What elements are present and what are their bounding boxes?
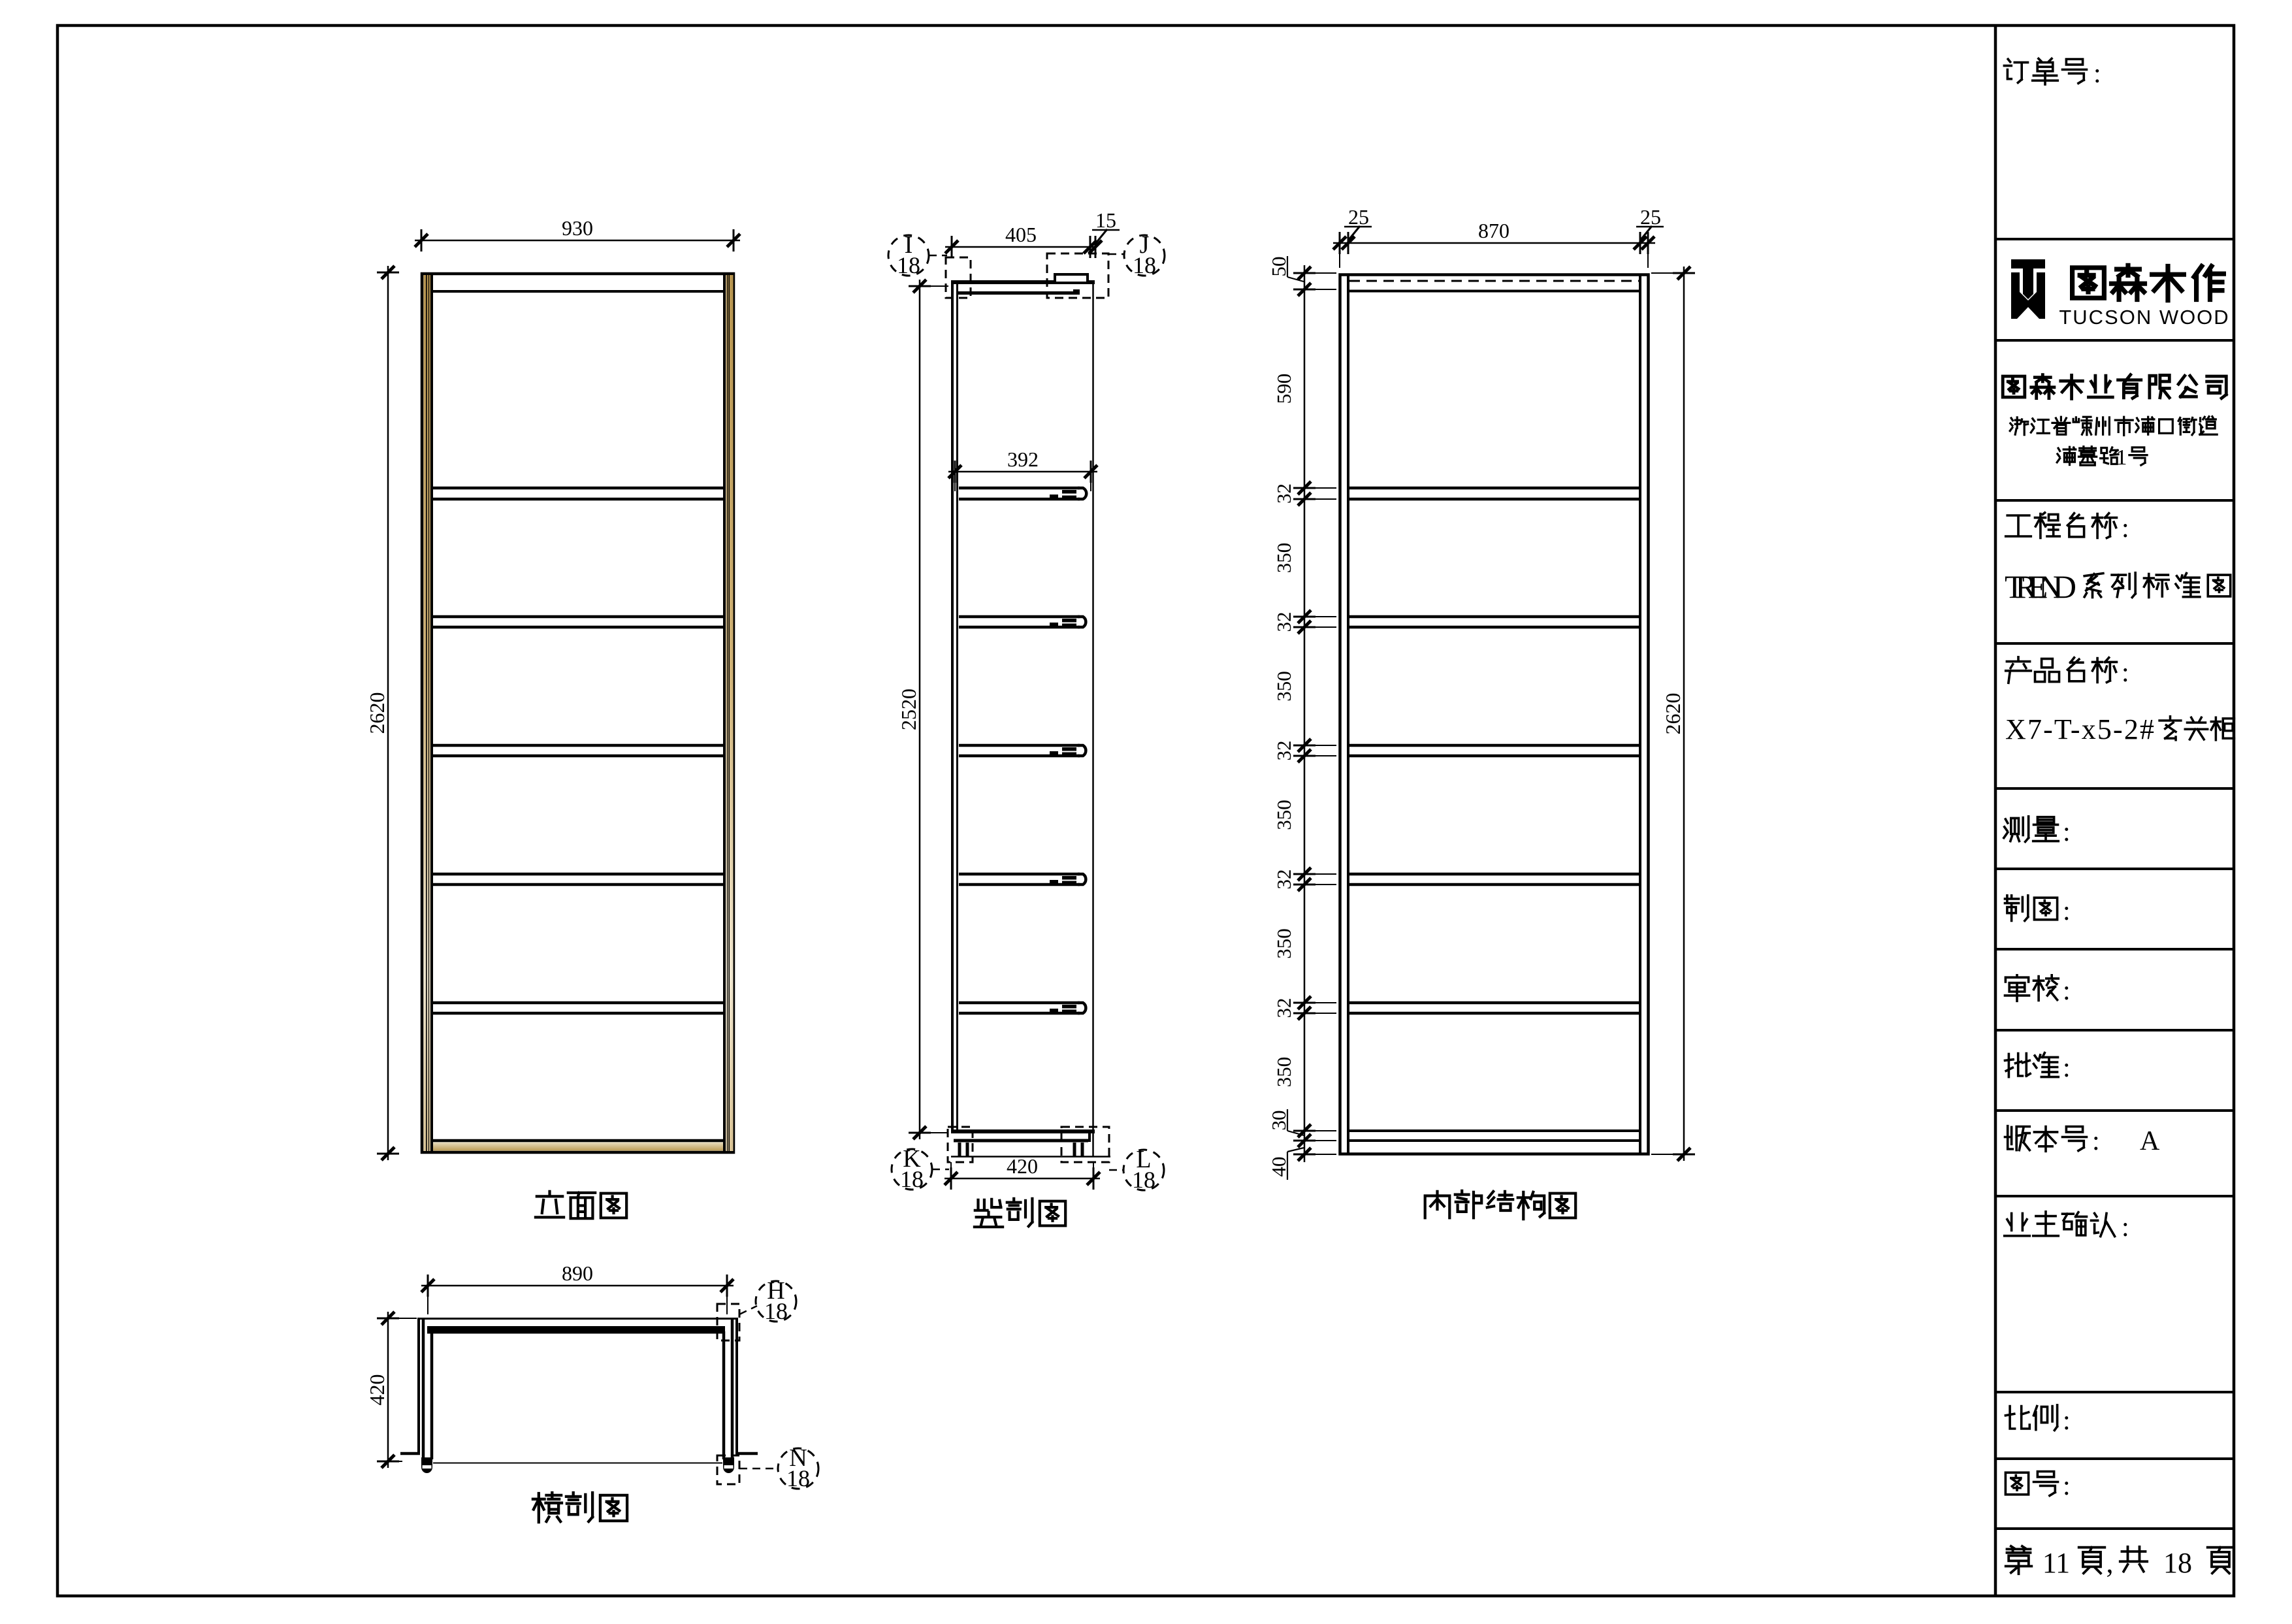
svg-text::: : [2063, 1053, 2071, 1083]
svg-text:32: 32 [1272, 741, 1295, 761]
svg-text:350: 350 [1272, 928, 1295, 959]
svg-text:25: 25 [1640, 205, 1661, 229]
svg-text:,: , [2106, 1547, 2114, 1579]
svg-text:890: 890 [562, 1261, 593, 1285]
svg-text:350: 350 [1272, 671, 1295, 702]
svg-text::: : [2063, 1406, 2071, 1436]
svg-text:18: 18 [900, 1166, 924, 1192]
svg-text:392: 392 [1007, 447, 1039, 471]
svg-text:X7-T-x5-2#: X7-T-x5-2# [2005, 713, 2154, 745]
svg-text:32: 32 [1272, 483, 1295, 504]
svg-text:32: 32 [1272, 612, 1295, 632]
svg-text:18: 18 [1132, 1167, 1155, 1193]
svg-text:40: 40 [1267, 1157, 1290, 1177]
svg-text:350: 350 [1272, 1057, 1295, 1088]
svg-text:420: 420 [365, 1374, 389, 1406]
svg-text:18: 18 [2163, 1547, 2192, 1579]
svg-text:18: 18 [897, 252, 920, 278]
svg-text:18: 18 [786, 1465, 810, 1491]
svg-text:A: A [2140, 1126, 2160, 1156]
svg-text:30: 30 [1267, 1111, 1290, 1131]
svg-text:420: 420 [1007, 1154, 1038, 1178]
svg-text:1: 1 [2116, 446, 2127, 470]
svg-text::: : [2063, 976, 2071, 1006]
svg-text::: : [2093, 59, 2101, 89]
svg-text::: : [2122, 658, 2129, 688]
svg-text:350: 350 [1272, 543, 1295, 574]
svg-text:2520: 2520 [897, 689, 920, 730]
svg-text::: : [2063, 896, 2071, 926]
svg-text:350: 350 [1272, 800, 1295, 830]
svg-text:15: 15 [1095, 208, 1116, 232]
svg-text::: : [2063, 1471, 2071, 1501]
svg-text::: : [2092, 1126, 2100, 1156]
svg-text:25: 25 [1348, 205, 1369, 229]
svg-text::: : [2122, 1212, 2129, 1242]
svg-text::: : [2122, 513, 2129, 544]
svg-text:930: 930 [562, 216, 593, 240]
svg-text:32: 32 [1272, 998, 1295, 1018]
svg-text:870: 870 [1478, 219, 1509, 242]
svg-text:TREND: TREND [2005, 568, 2076, 605]
svg-text:18: 18 [764, 1298, 788, 1324]
svg-text:2620: 2620 [365, 692, 389, 734]
svg-text:405: 405 [1005, 223, 1037, 246]
svg-text:TUCSON WOOD: TUCSON WOOD [2059, 306, 2229, 329]
svg-text:590: 590 [1272, 374, 1295, 404]
svg-text:50: 50 [1267, 257, 1290, 277]
svg-text:11: 11 [2042, 1547, 2070, 1579]
svg-text:2620: 2620 [1661, 693, 1685, 735]
svg-text::: : [2063, 817, 2071, 847]
svg-text:18: 18 [1133, 252, 1156, 278]
svg-text:32: 32 [1272, 869, 1295, 890]
